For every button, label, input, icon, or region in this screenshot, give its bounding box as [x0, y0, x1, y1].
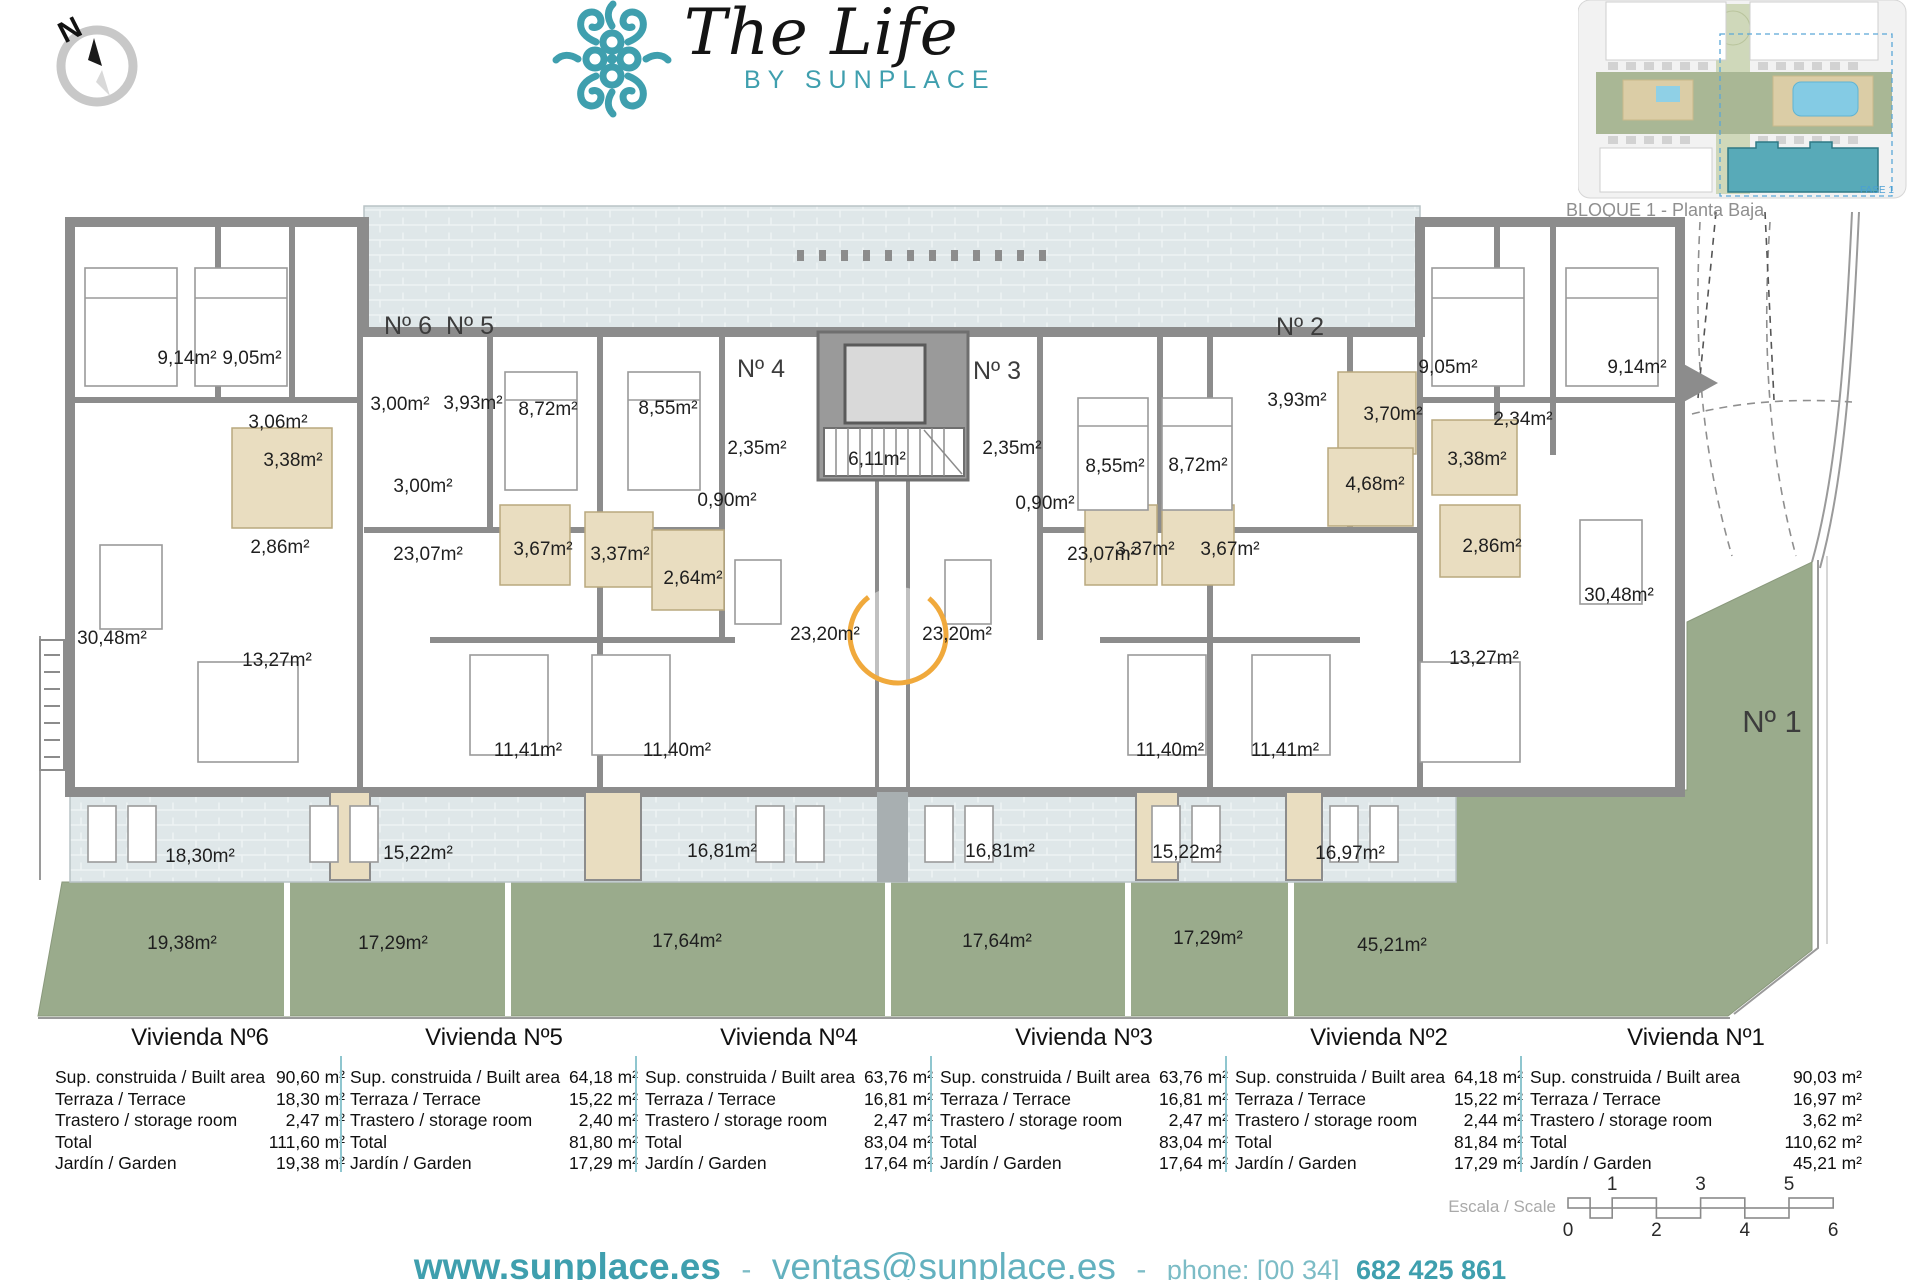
row-label: Total: [350, 1132, 387, 1154]
row-label: Total: [1530, 1132, 1567, 1154]
area-label: 3,70m²: [1363, 404, 1422, 425]
area-label: 2,86m²: [1462, 536, 1521, 557]
area-label: 13,27m²: [242, 650, 312, 671]
sunplace-knot-icon: [552, 0, 672, 118]
area-label: 30,48m²: [77, 628, 147, 649]
area-label: 3,38m²: [263, 450, 322, 471]
row-label: Sup. construida / Built area: [940, 1067, 1150, 1089]
table-divider: [930, 1056, 932, 1172]
unit-table-row: Total81,80 m²: [350, 1132, 638, 1154]
area-label: 6,11m²: [848, 449, 906, 470]
unit-table-row: Terraza / Terrace16,81 m²: [940, 1089, 1228, 1111]
area-label: 0,90m²: [1015, 493, 1074, 514]
scale-tick: 0: [1563, 1220, 1574, 1241]
area-label: 23,20m²: [922, 624, 992, 645]
area-label: 3,67m²: [1200, 539, 1259, 560]
unit-table: Vivienda Nº3Sup. construida / Built area…: [940, 1024, 1228, 1175]
row-value: 16,97 m²: [1785, 1089, 1862, 1111]
footer-phone-label: phone: [00 34]: [1167, 1255, 1340, 1280]
scale-tick: 3: [1695, 1176, 1706, 1195]
unit-table-row: Terraza / Terrace18,30 m²: [55, 1089, 345, 1111]
area-label: 15,22m²: [383, 843, 453, 864]
area-label: 11,40m²: [643, 740, 711, 761]
row-label: Sup. construida / Built area: [645, 1067, 855, 1089]
unit-table-row: Terraza / Terrace16,81 m²: [645, 1089, 933, 1111]
row-label: Trastero / storage room: [1235, 1110, 1417, 1132]
area-label: 17,64m²: [652, 931, 722, 952]
unit-table-row: Jardín / Garden19,38 m²: [55, 1153, 345, 1175]
unit-table: Vivienda Nº6Sup. construida / Built area…: [55, 1024, 345, 1175]
row-value: 2,47 m²: [278, 1110, 345, 1132]
row-value: 45,21 m²: [1785, 1153, 1862, 1175]
row-label: Jardín / Garden: [1235, 1153, 1357, 1175]
scale-bar-label: Escala / Scale: [1448, 1197, 1556, 1216]
area-label: 11,41m²: [1251, 740, 1319, 761]
area-label: 19,38m²: [147, 933, 217, 954]
inset-caption: BLOQUE 1 - Planta Baja: [1566, 200, 1764, 221]
footer-separator: -: [1136, 1253, 1146, 1280]
brand-logo: The Life BY SUNPLACE: [684, 0, 996, 95]
area-label: 9,14m²: [1607, 357, 1666, 378]
area-label: 13,27m²: [1449, 648, 1519, 669]
area-label: 9,05m²: [1418, 357, 1477, 378]
row-value: 19,38 m²: [268, 1153, 345, 1175]
row-value: 90,03 m²: [1785, 1067, 1862, 1089]
row-value: 15,22 m²: [1446, 1089, 1523, 1111]
row-label: Total: [645, 1132, 682, 1154]
row-label: Terraza / Terrace: [645, 1089, 776, 1111]
unit-table-row: Total110,62 m²: [1530, 1132, 1862, 1154]
unit-table-row: Sup. construida / Built area64,18 m²: [1235, 1067, 1523, 1089]
left-storage-hatch: [40, 640, 64, 770]
row-value: 15,22 m²: [561, 1089, 638, 1111]
row-value: 111,60 m²: [261, 1132, 345, 1154]
plan-sheet: 9,14m²9,05m²3,06m²3,38m²3,00m²3,93m²3,00…: [0, 0, 1920, 1280]
unit-table-row: Jardín / Garden45,21 m²: [1530, 1153, 1862, 1175]
footer-phone: 682 425 861: [1356, 1255, 1506, 1280]
footer-website: www.sunplace.es: [414, 1246, 721, 1280]
row-label: Sup. construida / Built area: [350, 1067, 560, 1089]
row-value: 64,18 m²: [561, 1067, 638, 1089]
unit-table-title: Vivienda Nº1: [1530, 1024, 1862, 1052]
unit-table-row: Total81,84 m²: [1235, 1132, 1523, 1154]
area-label: 16,81m²: [965, 841, 1035, 862]
unit-number-label: Nº 1: [1742, 704, 1802, 739]
area-label: 3,00m²: [393, 476, 452, 497]
area-label: 17,64m²: [962, 931, 1032, 952]
area-label: 9,14m²: [157, 348, 216, 369]
area-label: 8,72m²: [1168, 455, 1227, 476]
area-label: 23,07m²: [1067, 544, 1137, 565]
area-label: 18,30m²: [165, 846, 235, 867]
row-label: Terraza / Terrace: [350, 1089, 481, 1111]
scale-tick: 2: [1651, 1220, 1662, 1241]
brand-title: The Life: [684, 0, 996, 66]
top-terrace: [364, 206, 1420, 332]
row-value: 83,04 m²: [856, 1132, 933, 1154]
area-label: 4,68m²: [1345, 474, 1404, 495]
row-value: 17,29 m²: [1446, 1153, 1523, 1175]
row-label: Terraza / Terrace: [1235, 1089, 1366, 1111]
scale-bar: Escala / Scale 1350246: [1398, 1176, 1878, 1248]
row-value: 16,81 m²: [1151, 1089, 1228, 1111]
area-label: 3,00m²: [370, 394, 429, 415]
row-label: Jardín / Garden: [1530, 1153, 1652, 1175]
area-label: 2,35m²: [982, 438, 1041, 459]
unit-table-row: Total83,04 m²: [940, 1132, 1228, 1154]
table-divider: [1520, 1056, 1522, 1172]
highlighted-block-1: [1728, 142, 1878, 192]
unit-table-row: Trastero / storage room2,47 m²: [55, 1110, 345, 1132]
unit-number-label: Nº 3: [973, 357, 1021, 385]
unit-table-row: Jardín / Garden17,29 m²: [1235, 1153, 1523, 1175]
table-divider: [1225, 1056, 1227, 1172]
row-value: 81,80 m²: [561, 1132, 638, 1154]
row-value: 2,47 m²: [866, 1110, 933, 1132]
area-label: 23,07m²: [393, 544, 463, 565]
unit-table-row: Sup. construida / Built area64,18 m²: [350, 1067, 638, 1089]
unit-table-row: Terraza / Terrace15,22 m²: [350, 1089, 638, 1111]
unit-table-row: Trastero / storage room2,47 m²: [645, 1110, 933, 1132]
area-label: 17,29m²: [1173, 928, 1243, 949]
row-value: 18,30 m²: [268, 1089, 345, 1111]
unit-table: Vivienda Nº2Sup. construida / Built area…: [1235, 1024, 1523, 1175]
area-label: 2,86m²: [250, 537, 309, 558]
unit-table-title: Vivienda Nº5: [350, 1024, 638, 1052]
row-label: Trastero / storage room: [350, 1110, 532, 1132]
unit-table-row: Terraza / Terrace15,22 m²: [1235, 1089, 1523, 1111]
row-value: 17,29 m²: [561, 1153, 638, 1175]
area-label: 16,81m²: [687, 841, 757, 862]
row-label: Jardín / Garden: [55, 1153, 177, 1175]
area-label: 17,29m²: [358, 933, 428, 954]
unit-table-row: Sup. construida / Built area63,76 m²: [940, 1067, 1228, 1089]
row-value: 81,84 m²: [1446, 1132, 1523, 1154]
row-label: Terraza / Terrace: [55, 1089, 186, 1111]
area-label: 8,55m²: [638, 398, 697, 419]
row-value: 63,76 m²: [1151, 1067, 1228, 1089]
area-label: 3,93m²: [443, 393, 502, 414]
unit-table-row: Jardín / Garden17,29 m²: [350, 1153, 638, 1175]
scale-tick: 5: [1784, 1176, 1795, 1195]
unit-number-label: Nº 5: [446, 312, 494, 340]
row-value: 2,40 m²: [571, 1110, 638, 1132]
row-value: 64,18 m²: [1446, 1067, 1523, 1089]
scale-tick: 6: [1828, 1220, 1839, 1241]
unit-table-row: Total83,04 m²: [645, 1132, 933, 1154]
row-value: 3,62 m²: [1795, 1110, 1862, 1132]
row-label: Sup. construida / Built area: [1235, 1067, 1445, 1089]
unit-table: Vivienda Nº5Sup. construida / Built area…: [350, 1024, 638, 1175]
area-label: 3,67m²: [513, 539, 572, 560]
row-label: Trastero / storage room: [645, 1110, 827, 1132]
terrace-corridor: [877, 792, 908, 882]
area-label: 15,22m²: [1152, 842, 1222, 863]
row-label: Terraza / Terrace: [1530, 1089, 1661, 1111]
site-inset-map: FASE 1: [1578, 0, 1908, 202]
row-value: 2,47 m²: [1161, 1110, 1228, 1132]
unit-table-row: Jardín / Garden17,64 m²: [940, 1153, 1228, 1175]
unit-number-label: Nº 6: [384, 312, 432, 340]
unit-table-row: Total111,60 m²: [55, 1132, 345, 1154]
area-label: 3,06m²: [248, 412, 307, 433]
table-divider: [340, 1056, 342, 1172]
row-label: Total: [1235, 1132, 1272, 1154]
scale-tick: 4: [1740, 1220, 1751, 1241]
table-divider: [635, 1056, 637, 1172]
unit-table: Vivienda Nº1Sup. construida / Built area…: [1530, 1024, 1862, 1175]
row-value: 110,62 m²: [1777, 1132, 1863, 1154]
footer-email: ventas@sunplace.es: [772, 1246, 1116, 1280]
row-value: 16,81 m²: [856, 1089, 933, 1111]
area-label: 9,05m²: [222, 348, 281, 369]
footer-contact: www.sunplace.es - ventas@sunplace.es - p…: [0, 1246, 1920, 1280]
area-label: 2,35m²: [727, 438, 786, 459]
footer-separator: -: [741, 1253, 751, 1280]
unit-table-row: Jardín / Garden17,64 m²: [645, 1153, 933, 1175]
area-label: 45,21m²: [1357, 935, 1427, 956]
row-value: 90,60 m²: [268, 1067, 345, 1089]
row-label: Terraza / Terrace: [940, 1089, 1071, 1111]
area-label: 2,34m²: [1493, 409, 1552, 430]
road-dashed-curves: [1692, 222, 1852, 556]
unit-number-label: Nº 2: [1276, 313, 1324, 341]
row-label: Sup. construida / Built area: [1530, 1067, 1740, 1089]
unit-table-title: Vivienda Nº2: [1235, 1024, 1523, 1052]
unit-table: Vivienda Nº4Sup. construida / Built area…: [645, 1024, 933, 1175]
unit-table-row: Sup. construida / Built area90,60 m²: [55, 1067, 345, 1089]
unit-table-title: Vivienda Nº6: [55, 1024, 345, 1052]
area-label: 11,41m²: [494, 740, 562, 761]
area-label: 3,37m²: [590, 544, 649, 565]
row-label: Trastero / storage room: [940, 1110, 1122, 1132]
unit-table-row: Terraza / Terrace16,97 m²: [1530, 1089, 1862, 1111]
row-value: 83,04 m²: [1151, 1132, 1228, 1154]
row-value: 63,76 m²: [856, 1067, 933, 1089]
unit-table-title: Vivienda Nº4: [645, 1024, 933, 1052]
compass-icon: N: [42, 4, 162, 129]
unit-table-row: Trastero / storage room2,47 m²: [940, 1110, 1228, 1132]
row-label: Trastero / storage room: [55, 1110, 237, 1132]
area-label: 8,55m²: [1085, 456, 1144, 477]
row-label: Jardín / Garden: [645, 1153, 767, 1175]
brand-subtitle: BY SUNPLACE: [684, 66, 996, 95]
unit-table-row: Sup. construida / Built area90,03 m²: [1530, 1067, 1862, 1089]
unit-table-row: Trastero / storage room2,40 m²: [350, 1110, 638, 1132]
area-label: 11,40m²: [1136, 740, 1204, 761]
area-label: 8,72m²: [518, 399, 577, 420]
row-value: 2,44 m²: [1456, 1110, 1523, 1132]
scale-tick: 1: [1607, 1176, 1618, 1195]
unit-number-label: Nº 4: [737, 355, 785, 383]
inset-leader-lines: [1698, 212, 1774, 400]
row-label: Total: [940, 1132, 977, 1154]
area-label: 16,97m²: [1315, 843, 1385, 864]
fase-label: FASE 1: [1860, 185, 1894, 196]
row-value: 17,64 m²: [1151, 1153, 1228, 1175]
row-label: Jardín / Garden: [350, 1153, 472, 1175]
unit-table-row: Trastero / storage room2,44 m²: [1235, 1110, 1523, 1132]
row-label: Trastero / storage room: [1530, 1110, 1712, 1132]
area-label: 0,90m²: [697, 490, 756, 511]
area-label: 2,64m²: [663, 568, 722, 589]
unit-table-row: Sup. construida / Built area63,76 m²: [645, 1067, 933, 1089]
unit-table-row: Trastero / storage room3,62 m²: [1530, 1110, 1862, 1132]
area-label: 23,20m²: [790, 624, 860, 645]
area-label: 30,48m²: [1584, 585, 1654, 606]
row-label: Jardín / Garden: [940, 1153, 1062, 1175]
compass-north-label: N: [53, 11, 87, 50]
row-label: Total: [55, 1132, 92, 1154]
area-label: 3,93m²: [1267, 390, 1326, 411]
unit-table-title: Vivienda Nº3: [940, 1024, 1228, 1052]
area-label: 3,38m²: [1447, 449, 1506, 470]
building-bay-wedge: [1680, 362, 1718, 404]
row-value: 17,64 m²: [856, 1153, 933, 1175]
row-label: Sup. construida / Built area: [55, 1067, 265, 1089]
